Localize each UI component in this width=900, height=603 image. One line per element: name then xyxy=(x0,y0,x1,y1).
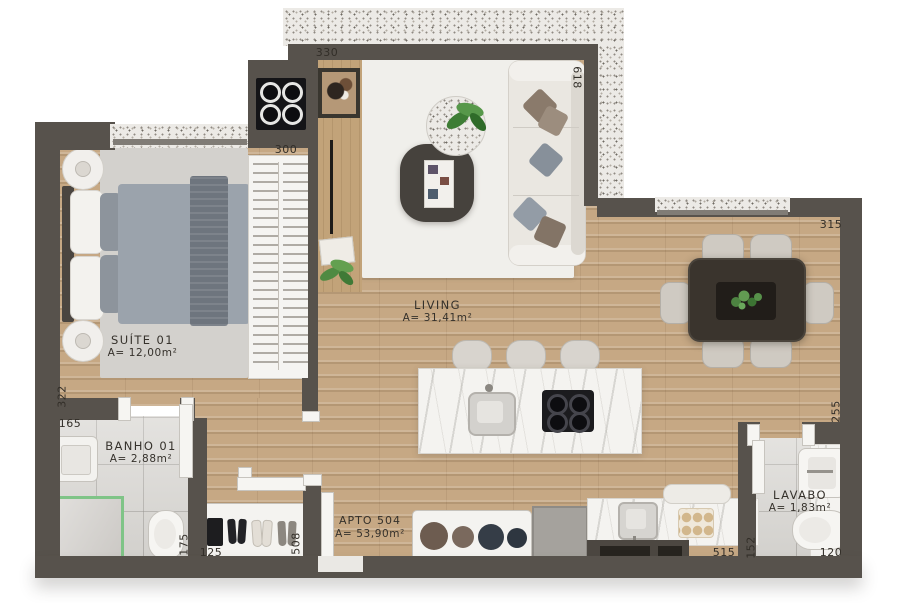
dining-chair xyxy=(802,282,834,324)
magazine-photo xyxy=(440,177,449,185)
room-area: A= 12,00m² xyxy=(95,347,190,359)
hall-door-leaf xyxy=(237,477,306,491)
sideboard-plant xyxy=(316,252,362,292)
sink-basin xyxy=(477,401,503,423)
room-name: LAVABO xyxy=(760,489,840,502)
wall-living-right xyxy=(584,44,598,206)
shoe-heel-white xyxy=(261,520,273,548)
door-jamb xyxy=(302,411,320,422)
pot xyxy=(507,528,527,548)
lavabo-door-leaf xyxy=(752,440,765,494)
wall-suite-top xyxy=(35,122,115,150)
island-cooktop xyxy=(542,390,594,432)
pot xyxy=(478,524,504,550)
floor-plan: SUÍTE 01 A= 12,00m² BANHO 01 A= 2,88m² L… xyxy=(0,0,900,603)
dim-125: 125 xyxy=(189,546,233,559)
burner xyxy=(282,104,303,125)
entry-threshold xyxy=(318,556,363,572)
room-name: APTO 504 xyxy=(330,515,410,528)
toilet-bowl xyxy=(154,519,176,549)
wall-suite-living-divider xyxy=(308,60,318,420)
bed-pillow xyxy=(70,190,104,254)
hanging-clothes xyxy=(283,162,308,370)
wardrobe xyxy=(248,155,314,379)
sink-basin xyxy=(808,457,836,489)
bed-pillow xyxy=(70,256,104,320)
room-name: SUÍTE 01 xyxy=(95,334,190,347)
cabinet-handle xyxy=(330,140,333,234)
shoe-heel-black xyxy=(237,519,247,544)
magazine-photo xyxy=(428,165,438,174)
dim-152: 152 xyxy=(745,526,758,570)
apto-label: APTO 504 A= 53,90m² xyxy=(330,515,410,540)
wall-left-outer xyxy=(35,122,60,578)
picture-frame xyxy=(318,68,360,118)
room-area: A= 31,41m² xyxy=(390,312,485,324)
room-area: A= 53,90m² xyxy=(330,528,410,540)
bedside-lamp xyxy=(75,161,91,177)
magazine-stack xyxy=(424,160,454,208)
bread-basket xyxy=(678,508,714,538)
dim-255: 255 xyxy=(830,390,843,434)
centerpiece-plant xyxy=(724,284,768,318)
door-jamb xyxy=(802,424,815,446)
dim-315: 315 xyxy=(809,218,853,231)
window-dining-glass xyxy=(657,210,788,215)
sink-basin xyxy=(626,509,646,529)
burner xyxy=(547,412,568,433)
wall-right-outer xyxy=(840,210,862,578)
door-jamb xyxy=(303,474,322,486)
dim-508: 508 xyxy=(290,522,303,566)
service-shaft xyxy=(248,60,312,148)
door-jamb xyxy=(118,397,131,421)
burner xyxy=(569,412,590,433)
pouf-plant-leaves xyxy=(442,96,494,142)
kitchen-island xyxy=(418,368,642,454)
kitchen-counter xyxy=(587,498,759,546)
dim-165: 165 xyxy=(48,417,92,430)
shaft-cooktop xyxy=(256,78,306,130)
toilet-bowl xyxy=(799,517,831,543)
bed-duvet xyxy=(118,184,250,324)
dim-515: 515 xyxy=(702,546,746,559)
suite-label: SUÍTE 01 A= 12,00m² xyxy=(95,334,190,359)
sofa-pillow xyxy=(528,142,565,179)
window-suite-glass xyxy=(113,139,247,145)
burner xyxy=(282,82,303,103)
masonry-band-right xyxy=(597,44,624,206)
living-label: LIVING A= 31,41m² xyxy=(390,299,485,324)
burner xyxy=(260,104,281,125)
pot xyxy=(452,526,474,548)
dim-300: 300 xyxy=(264,143,308,156)
shoe-heel-black xyxy=(227,519,237,544)
dim-322: 322 xyxy=(56,375,69,419)
dim-175: 175 xyxy=(178,523,191,567)
island-sink xyxy=(468,392,516,436)
dim-120: 120 xyxy=(809,546,853,559)
burner xyxy=(260,82,281,103)
lavabo-label: LAVABO A= 1,83m² xyxy=(760,489,840,514)
appliance xyxy=(532,506,588,558)
shoe-flat-gray xyxy=(277,521,286,546)
island-faucet xyxy=(485,384,493,392)
room-name: BANHO 01 xyxy=(86,440,196,453)
magazine-photo xyxy=(428,189,438,199)
bedside-lamp xyxy=(75,333,91,349)
banho-label: BANHO 01 A= 2,88m² xyxy=(86,440,196,465)
pot xyxy=(420,522,448,550)
dim-618: 618 xyxy=(571,56,584,100)
lavabo-faucet xyxy=(807,470,833,473)
hanging-clothes xyxy=(253,162,279,370)
dim-330: 330 xyxy=(305,46,349,59)
counter-bench xyxy=(663,484,731,504)
clutch-bag xyxy=(207,518,223,546)
room-area: A= 1,83m² xyxy=(760,502,840,514)
counter-sink xyxy=(618,502,658,540)
room-area: A= 2,88m² xyxy=(86,453,196,465)
masonry-band-top xyxy=(283,8,624,46)
bed-throw xyxy=(190,176,228,326)
room-name: LIVING xyxy=(390,299,485,312)
sofa-seam xyxy=(513,195,579,196)
